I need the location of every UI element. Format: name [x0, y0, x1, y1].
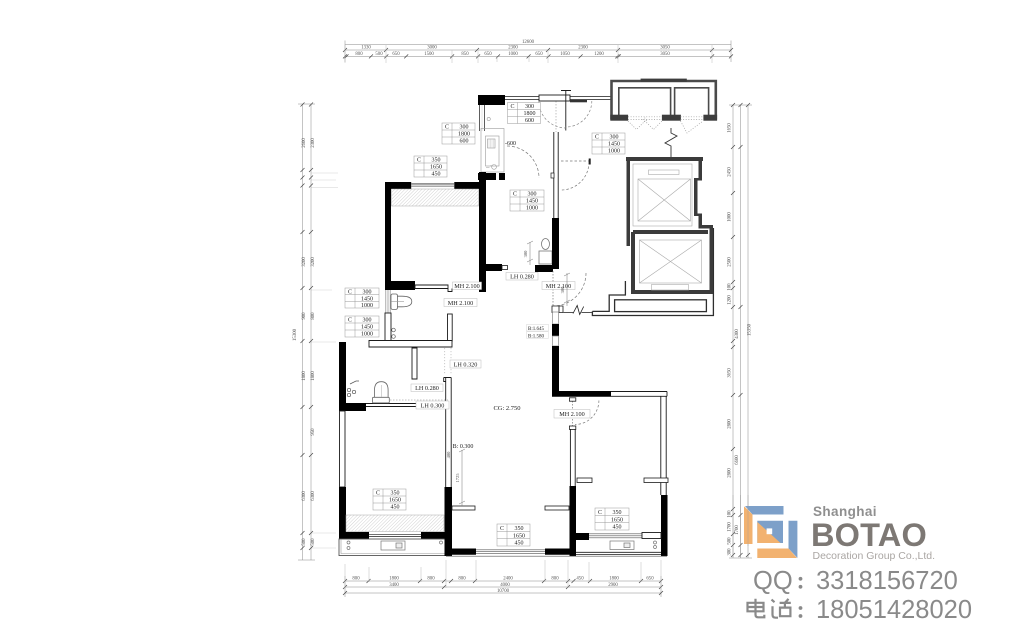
svg-text:500: 500 — [375, 52, 383, 57]
svg-text:950: 950 — [311, 428, 316, 436]
svg-text:350: 350 — [432, 158, 441, 164]
svg-text:QQ: QQ — [753, 567, 793, 595]
svg-text:1800: 1800 — [524, 111, 536, 117]
svg-text:800: 800 — [311, 312, 316, 320]
svg-text:650: 650 — [535, 52, 543, 57]
svg-text:1000: 1000 — [526, 206, 538, 212]
svg-text:450: 450 — [515, 541, 524, 547]
svg-text:LH 0.300: LH 0.300 — [421, 402, 445, 409]
svg-text:10700: 10700 — [497, 589, 510, 594]
svg-text:1450: 1450 — [361, 296, 373, 302]
svg-text:2800: 2800 — [728, 419, 733, 429]
svg-text:1650: 1650 — [611, 517, 623, 523]
svg-text:600: 600 — [460, 139, 469, 145]
svg-text:2500: 2500 — [728, 257, 733, 267]
svg-text:1000: 1000 — [361, 332, 373, 338]
svg-text:450: 450 — [432, 172, 441, 178]
svg-text:6300: 6300 — [302, 491, 307, 501]
svg-text:MH 2.100: MH 2.100 — [546, 283, 571, 290]
svg-text:600: 600 — [525, 118, 534, 124]
svg-text:1450: 1450 — [526, 199, 538, 205]
svg-text:2900: 2900 — [608, 583, 618, 588]
svg-text:300: 300 — [560, 286, 565, 294]
svg-text:100: 100 — [728, 283, 733, 291]
svg-text:MH 2.100: MH 2.100 — [454, 283, 479, 290]
svg-text:300: 300 — [363, 318, 372, 324]
svg-text:1330: 1330 — [361, 46, 371, 51]
svg-text:6300: 6300 — [311, 491, 316, 501]
svg-text:500: 500 — [311, 538, 316, 546]
svg-text:1200: 1200 — [728, 295, 733, 305]
svg-text:100: 100 — [728, 510, 733, 518]
svg-text:1650: 1650 — [513, 533, 525, 539]
svg-text:800: 800 — [427, 577, 435, 582]
svg-text:C: C — [513, 192, 517, 198]
svg-text:350: 350 — [613, 510, 622, 516]
svg-text:C: C — [348, 318, 352, 324]
svg-text:3200: 3200 — [311, 257, 316, 267]
svg-text:2600: 2600 — [302, 138, 307, 148]
svg-text:1800: 1800 — [311, 371, 316, 381]
svg-text:500: 500 — [728, 537, 733, 545]
svg-text:800: 800 — [458, 577, 466, 582]
svg-text:-600: -600 — [505, 141, 516, 147]
svg-text:4000: 4000 — [500, 583, 510, 588]
svg-text:C: C — [510, 104, 514, 110]
svg-text:LH 0.280: LH 0.280 — [415, 385, 439, 392]
svg-text:300: 300 — [363, 290, 372, 296]
svg-text:1800: 1800 — [458, 132, 470, 138]
svg-text:900: 900 — [302, 312, 307, 320]
svg-text:800: 800 — [352, 577, 360, 582]
svg-text:1650: 1650 — [728, 123, 733, 133]
svg-text:LH 0.280: LH 0.280 — [510, 274, 534, 281]
svg-text:2300: 2300 — [508, 46, 518, 51]
svg-text:1700: 1700 — [735, 525, 740, 535]
svg-text:300: 300 — [523, 250, 528, 258]
svg-text:CG: 2.750: CG: 2.750 — [493, 405, 520, 412]
svg-text:2300: 2300 — [578, 46, 588, 51]
svg-text:1000: 1000 — [508, 52, 518, 57]
svg-text:C: C — [445, 125, 449, 131]
svg-text:650: 650 — [646, 577, 654, 582]
svg-text:1800: 1800 — [609, 577, 619, 582]
svg-text:C: C — [595, 135, 599, 141]
svg-text:1050: 1050 — [560, 52, 570, 57]
svg-text:300: 300 — [728, 548, 733, 556]
svg-text:1700: 1700 — [728, 522, 733, 532]
svg-text:1800: 1800 — [389, 577, 399, 582]
svg-text:3050: 3050 — [660, 52, 670, 57]
svg-text:3200: 3200 — [302, 257, 307, 267]
svg-text:1450: 1450 — [608, 142, 620, 148]
svg-text:350: 350 — [391, 491, 400, 497]
svg-text:2800: 2800 — [728, 468, 733, 478]
svg-text:450: 450 — [391, 505, 400, 511]
svg-text:Decoration Group Co.,Ltd.: Decoration Group Co.,Ltd. — [813, 550, 936, 562]
svg-text:C: C — [348, 290, 352, 296]
svg-text:3400: 3400 — [389, 583, 399, 588]
svg-text:1650: 1650 — [430, 165, 442, 171]
svg-text:300: 300 — [528, 192, 537, 198]
svg-text:18051428020: 18051428020 — [816, 596, 972, 624]
svg-text:B:1.645: B:1.645 — [528, 327, 544, 332]
svg-text:1450: 1450 — [361, 325, 373, 331]
svg-text:3050: 3050 — [660, 46, 670, 51]
svg-text:15350: 15350 — [748, 323, 753, 336]
svg-text:800: 800 — [355, 52, 363, 57]
svg-text:2300: 2300 — [311, 138, 316, 148]
svg-text:B: 0.300: B: 0.300 — [453, 444, 474, 450]
svg-text:3318156720: 3318156720 — [816, 567, 958, 595]
svg-text:B:1.580: B:1.580 — [528, 334, 544, 339]
svg-text:C: C — [417, 158, 421, 164]
svg-text:1000: 1000 — [608, 149, 620, 155]
svg-text:1500: 1500 — [424, 52, 434, 57]
svg-text:500: 500 — [302, 538, 307, 546]
svg-text:300: 300 — [525, 104, 534, 110]
svg-text:LH 0.320: LH 0.320 — [454, 361, 478, 368]
svg-text:2450: 2450 — [728, 167, 733, 177]
svg-text:1000: 1000 — [728, 212, 733, 222]
svg-text:850: 850 — [461, 52, 469, 57]
svg-text:350: 350 — [515, 526, 524, 532]
svg-text:MH 2.100: MH 2.100 — [559, 411, 584, 418]
svg-text:4300: 4300 — [735, 329, 740, 339]
svg-text:1000: 1000 — [361, 303, 373, 309]
svg-text:650: 650 — [392, 52, 400, 57]
svg-text:3650: 3650 — [728, 368, 733, 378]
svg-text:1200: 1200 — [594, 52, 604, 57]
svg-text:MH 2.100: MH 2.100 — [448, 300, 473, 307]
svg-text:C: C — [598, 510, 602, 516]
svg-text:BOTAO: BOTAO — [811, 517, 927, 553]
svg-text:800: 800 — [551, 577, 559, 582]
svg-text:1800: 1800 — [302, 371, 307, 381]
svg-text:C: C — [376, 491, 380, 497]
svg-text:1650: 1650 — [389, 498, 401, 504]
svg-text:6600: 6600 — [735, 455, 740, 465]
svg-text:2400: 2400 — [503, 577, 513, 582]
svg-text:300: 300 — [610, 135, 619, 141]
svg-text:12600: 12600 — [522, 40, 535, 45]
svg-text:450: 450 — [576, 577, 584, 582]
svg-text:1725: 1725 — [455, 473, 460, 483]
svg-text:400: 400 — [446, 451, 451, 459]
svg-text:300: 300 — [460, 125, 469, 131]
svg-text:450: 450 — [613, 525, 622, 531]
svg-text:3000: 3000 — [427, 46, 437, 51]
svg-text:650: 650 — [484, 52, 492, 57]
svg-text:15300: 15300 — [293, 328, 298, 341]
svg-text:C: C — [500, 526, 504, 532]
